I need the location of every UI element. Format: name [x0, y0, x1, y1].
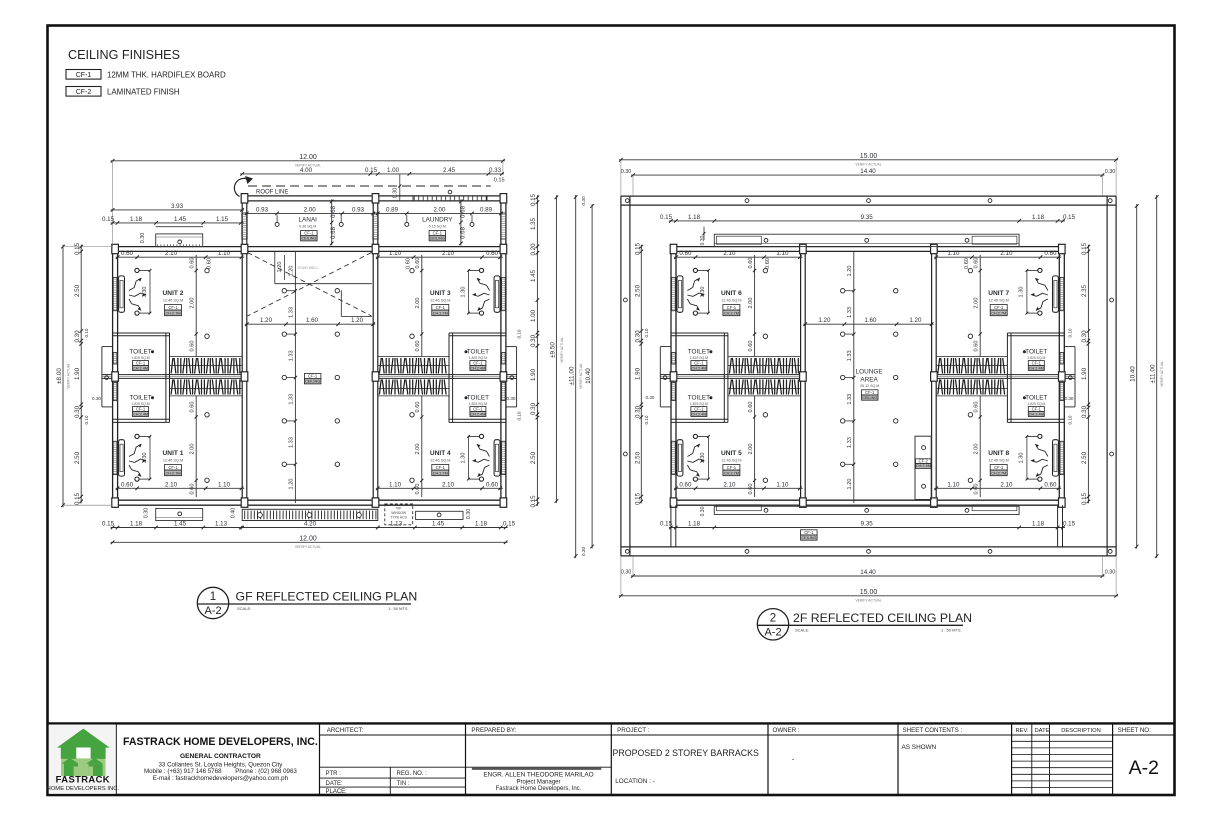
svg-text:VERIFY ACTUAL: VERIFY ACTUAL [560, 337, 564, 363]
svg-text:2.10: 2.10 [165, 250, 178, 257]
svg-text:0.89: 0.89 [480, 206, 493, 213]
svg-text:CH:2.7M: CH:2.7M [724, 312, 739, 316]
svg-text:0.60: 0.60 [748, 484, 754, 495]
svg-text:GF REFLECTED CEILING PLAN: GF REFLECTED CEILING PLAN [236, 590, 418, 604]
svg-text:1.33: 1.33 [847, 437, 853, 448]
svg-text:1.20: 1.20 [847, 266, 853, 277]
svg-text:0.60: 0.60 [190, 402, 196, 413]
svg-text:0.30: 0.30 [92, 396, 101, 401]
svg-text:CH:2.4M: CH:2.4M [1029, 412, 1044, 416]
svg-text:±11.00: ±11.00 [569, 366, 576, 385]
svg-text:26.12 SQ.M: 26.12 SQ.M [860, 384, 879, 388]
svg-text:1.18: 1.18 [130, 216, 143, 223]
svg-text:0.15: 0.15 [102, 520, 115, 527]
svg-text:CH:2.7M: CH:2.7M [433, 312, 448, 316]
svg-text:PROPOSED 2 STOREY BARRACKS: PROPOSED 2 STOREY BARRACKS [613, 748, 759, 758]
svg-text:TYPE ACU: TYPE ACU [390, 516, 407, 520]
svg-text:0.30: 0.30 [74, 405, 81, 418]
svg-text:1.10: 1.10 [776, 250, 789, 257]
svg-text:0.10: 0.10 [1068, 415, 1073, 424]
svg-text:12.46 SQ.M: 12.46 SQ.M [989, 299, 1009, 303]
svg-text:1.33: 1.33 [847, 307, 853, 318]
svg-text:0.30: 0.30 [1105, 570, 1116, 576]
svg-text:0.30: 0.30 [700, 506, 706, 516]
svg-text:0.60: 0.60 [748, 258, 754, 269]
svg-text:0.10: 0.10 [1068, 328, 1073, 337]
svg-text:0.15: 0.15 [74, 242, 81, 255]
svg-text:0.60: 0.60 [190, 484, 196, 495]
svg-text:1.30: 1.30 [142, 287, 148, 298]
svg-text:CEILING: CEILING [430, 237, 445, 241]
svg-text:0.30: 0.30 [634, 330, 641, 343]
svg-text:1.60: 1.60 [306, 317, 319, 324]
svg-text:TOILET: TOILET [1025, 395, 1047, 402]
svg-text:0.60: 0.60 [974, 484, 980, 495]
svg-text:CF-1: CF-1 [473, 360, 483, 365]
svg-text:2.00: 2.00 [974, 298, 980, 309]
svg-text:12.46 SQ.M: 12.46 SQ.M [163, 459, 183, 463]
svg-text:0.30: 0.30 [393, 188, 399, 199]
svg-text:4.20: 4.20 [304, 520, 317, 527]
svg-text:0.30: 0.30 [144, 508, 150, 519]
svg-text:Fastrack Home Developers, Inc.: Fastrack Home Developers, Inc. [496, 786, 582, 792]
svg-text:0.60: 0.60 [974, 341, 980, 352]
svg-text:9.35: 9.35 [861, 520, 874, 527]
svg-text:VERIFY ACTUAL: VERIFY ACTUAL [67, 363, 71, 389]
svg-text:1.10: 1.10 [389, 481, 402, 488]
svg-text:0.60: 0.60 [1044, 481, 1057, 488]
svg-text:REV.: REV. [1016, 728, 1029, 734]
svg-text:0.60: 0.60 [748, 402, 754, 413]
svg-text:0.30: 0.30 [1081, 330, 1088, 343]
svg-text:TOILET: TOILET [129, 349, 151, 356]
svg-text:0.60: 0.60 [974, 258, 980, 269]
svg-text:0.20: 0.20 [530, 243, 537, 256]
svg-text:1.33: 1.33 [289, 350, 295, 361]
svg-text:±11.00: ±11.00 [1150, 364, 1157, 383]
svg-text:10.40: 10.40 [1130, 366, 1137, 382]
svg-text:0.15: 0.15 [1081, 242, 1088, 255]
svg-text:0.15: 0.15 [634, 492, 641, 505]
svg-text:0.30: 0.30 [1081, 405, 1088, 418]
svg-text:12.00: 12.00 [299, 535, 317, 542]
svg-text:0.15: 0.15 [634, 242, 641, 255]
svg-text:REG. NO. :: REG. NO. : [397, 771, 428, 777]
svg-text:0.30: 0.30 [646, 395, 655, 400]
svg-text:CF-1: CF-1 [76, 72, 92, 79]
svg-text:15.00: 15.00 [860, 589, 878, 596]
svg-text:TIN :: TIN : [397, 781, 410, 787]
svg-text:9.35: 9.35 [861, 214, 874, 221]
svg-text:12.00: 12.00 [299, 154, 317, 161]
svg-text:1.30: 1.30 [700, 453, 706, 464]
svg-text:CF-1: CF-1 [694, 406, 704, 411]
svg-text:1.20: 1.20 [351, 317, 364, 324]
svg-text:1.33: 1.33 [289, 437, 295, 448]
svg-text:0.30: 0.30 [621, 169, 632, 175]
svg-text:2.00: 2.00 [974, 444, 980, 455]
svg-text:CF-1: CF-1 [304, 231, 314, 236]
svg-text:2.35: 2.35 [1081, 284, 1088, 297]
svg-text:0.30: 0.30 [530, 402, 537, 415]
svg-text:0.60: 0.60 [415, 402, 421, 413]
svg-text:E-mail : fastrackhomedeveloper: E-mail : fastrackhomedevelopers@yahoo.co… [153, 775, 289, 782]
svg-text:0.30: 0.30 [530, 334, 537, 347]
svg-text:0.60: 0.60 [406, 258, 412, 269]
svg-text:0.30: 0.30 [621, 570, 632, 576]
svg-text:0.15: 0.15 [530, 193, 537, 206]
svg-text:Project Manager: Project Manager [516, 780, 560, 786]
svg-text:0.60: 0.60 [415, 258, 421, 269]
svg-text:1.20: 1.20 [260, 317, 273, 324]
svg-text:A-2: A-2 [764, 626, 781, 638]
svg-text:0.40: 0.40 [231, 508, 237, 519]
svg-text:1.10: 1.10 [947, 250, 960, 257]
svg-text:SCALE:: SCALE: [795, 627, 809, 632]
svg-text:1 : 50 MTS.: 1 : 50 MTS. [941, 627, 962, 632]
svg-text:LOUNGE: LOUNGE [856, 369, 883, 376]
svg-text:DATE:: DATE: [326, 781, 344, 787]
svg-text:1.30: 1.30 [1019, 287, 1025, 298]
svg-text:1.20: 1.20 [818, 317, 831, 324]
svg-text:1.20: 1.20 [847, 479, 853, 490]
svg-text:0.60: 0.60 [121, 481, 134, 488]
svg-text:1.15: 1.15 [216, 216, 229, 223]
svg-text:UNIT 1: UNIT 1 [163, 450, 184, 457]
svg-text:CH:2.7M: CH:2.7M [991, 312, 1006, 316]
svg-text:10.40: 10.40 [585, 368, 592, 384]
svg-text:1.30: 1.30 [460, 453, 466, 464]
svg-text:12.46 SQ.M: 12.46 SQ.M [430, 299, 450, 303]
svg-text:2.00: 2.00 [190, 444, 196, 455]
svg-text:2.00: 2.00 [433, 206, 446, 213]
svg-text:0.60: 0.60 [486, 481, 499, 488]
svg-text:CEILING: CEILING [862, 396, 877, 400]
svg-text:0.15: 0.15 [1063, 214, 1076, 221]
svg-text:2.00: 2.00 [748, 298, 754, 309]
svg-text:WINDOW: WINDOW [391, 511, 407, 515]
svg-text:0.15: 0.15 [530, 495, 537, 508]
svg-text:2F REFLECTED CEILING PLAN: 2F REFLECTED CEILING PLAN [793, 611, 972, 625]
svg-text:2.50: 2.50 [1081, 451, 1088, 464]
svg-text:1.00: 1.00 [387, 167, 400, 174]
svg-text:0.30: 0.30 [1105, 169, 1116, 175]
svg-text:2.10: 2.10 [165, 481, 178, 488]
svg-text:1.20: 1.20 [289, 479, 295, 490]
svg-text:DATE: DATE [1035, 728, 1050, 734]
svg-text:0.10: 0.10 [517, 329, 522, 338]
svg-text:FASTRACK: FASTRACK [56, 774, 110, 785]
svg-text:CF-1: CF-1 [694, 360, 704, 365]
svg-text:0.15: 0.15 [365, 167, 378, 174]
svg-text:CEILING: CEILING [301, 237, 316, 241]
svg-text:0.30: 0.30 [74, 330, 81, 343]
svg-text:2.00: 2.00 [748, 444, 754, 455]
svg-text:PLACE:: PLACE: [326, 789, 348, 795]
svg-text:1.10: 1.10 [389, 250, 402, 257]
svg-text:0.15: 0.15 [660, 520, 673, 527]
svg-text:PROJECT :: PROJECT : [617, 727, 649, 734]
svg-text:OWNER :: OWNER : [773, 727, 800, 734]
svg-text:A-2: A-2 [1129, 757, 1159, 779]
svg-text:0.60: 0.60 [748, 341, 754, 352]
svg-text:2.00: 2.00 [190, 298, 196, 309]
svg-text:0.15: 0.15 [503, 520, 516, 527]
svg-text:1.10: 1.10 [947, 481, 960, 488]
svg-text:CF-1: CF-1 [994, 465, 1004, 470]
svg-text:1.45: 1.45 [432, 520, 445, 527]
svg-text:0.10: 0.10 [644, 328, 649, 337]
svg-text:2.45: 2.45 [443, 167, 456, 174]
svg-text:AS SHOWN: AS SHOWN [902, 744, 937, 751]
svg-text:CF-1: CF-1 [1032, 360, 1042, 365]
svg-text:DESCRIPTION: DESCRIPTION [1061, 728, 1101, 734]
svg-text:CF-1: CF-1 [994, 305, 1004, 310]
svg-text:0.10: 0.10 [517, 411, 522, 420]
svg-text:1.45: 1.45 [530, 269, 537, 282]
svg-text:0.60: 0.60 [415, 484, 421, 495]
svg-text:CF-2: CF-2 [919, 458, 929, 463]
svg-text:UNIT 8: UNIT 8 [988, 450, 1009, 457]
svg-text:0.60: 0.60 [964, 258, 970, 269]
svg-text:UNIT 5: UNIT 5 [721, 450, 742, 457]
svg-text:VERIFY ACTUAL: VERIFY ACTUAL [855, 163, 881, 167]
svg-text:1.33: 1.33 [847, 350, 853, 361]
svg-text:CF-1: CF-1 [473, 406, 483, 411]
svg-text:0.60: 0.60 [765, 258, 771, 269]
svg-text:ENGR. ALLEN THEODORE MARILAO: ENGR. ALLEN THEODORE MARILAO [483, 772, 593, 779]
svg-text:12.46 SQ.M: 12.46 SQ.M [163, 299, 183, 303]
svg-text:5.15 SQ.M: 5.15 SQ.M [429, 225, 446, 229]
svg-text:15.00: 15.00 [860, 153, 878, 160]
svg-text:TOILET: TOILET [129, 395, 151, 402]
svg-text:CF-1: CF-1 [804, 530, 814, 535]
svg-text:0.60: 0.60 [415, 341, 421, 352]
svg-text:2.10: 2.10 [723, 481, 736, 488]
svg-text:0.15: 0.15 [74, 492, 81, 505]
svg-text:0.93: 0.93 [352, 206, 365, 213]
svg-text:±8.00: ±8.00 [56, 368, 63, 384]
svg-text:VIP: VIP [396, 507, 402, 511]
svg-text:CH:2.4M: CH:2.4M [691, 412, 706, 416]
svg-text:0.93: 0.93 [256, 206, 269, 213]
svg-text:UNIT 4: UNIT 4 [430, 450, 451, 457]
svg-text:0.60: 0.60 [190, 341, 196, 352]
svg-text:SHEET NO:: SHEET NO: [1118, 727, 1152, 734]
svg-text:CEILING FINISHES: CEILING FINISHES [68, 48, 180, 62]
svg-text:1.20: 1.20 [909, 317, 922, 324]
svg-text:6.36 SQ.M: 6.36 SQ.M [299, 225, 316, 229]
svg-text:1.20: 1.20 [289, 266, 295, 277]
svg-text:1.90: 1.90 [634, 367, 641, 380]
svg-text:CF-2: CF-2 [76, 89, 92, 96]
svg-text:LAMINATED FINISH: LAMINATED FINISH [107, 87, 180, 96]
svg-text:1.13: 1.13 [390, 520, 403, 527]
svg-text:A-2: A-2 [204, 605, 221, 617]
svg-text:CF-1: CF-1 [865, 390, 875, 395]
svg-text:1.90: 1.90 [530, 368, 537, 381]
svg-text:PTR :: PTR : [326, 771, 342, 777]
svg-text:0.30: 0.30 [507, 396, 516, 401]
svg-text:0.30: 0.30 [466, 509, 472, 520]
svg-text:CH:2.7M: CH:2.7M [166, 472, 181, 476]
svg-text:CF-1: CF-1 [308, 374, 318, 379]
svg-text:2.10: 2.10 [723, 250, 736, 257]
svg-text:CH:2.7M: CH:2.7M [724, 472, 739, 476]
svg-text:12MM THK. HARDIFLEX BOARD: 12MM THK. HARDIFLEX BOARD [107, 70, 226, 79]
svg-text:Mobile : (+63) 917 146 5768: Mobile : (+63) 917 146 5768 Phone : (02)… [144, 768, 297, 775]
svg-text:±9.50: ±9.50 [549, 342, 556, 358]
svg-text:1.10: 1.10 [776, 481, 789, 488]
svg-text:1.18: 1.18 [688, 520, 701, 527]
svg-text:TOILET: TOILET [467, 349, 489, 356]
svg-text:CF-1: CF-1 [136, 360, 146, 365]
svg-text:LOCATION : -: LOCATION : - [615, 778, 655, 785]
svg-text:CEILING: CEILING [305, 380, 320, 384]
svg-text:0.60: 0.60 [207, 258, 213, 269]
svg-text:LANAI: LANAI [298, 217, 317, 224]
svg-text:TOILET: TOILET [688, 395, 710, 402]
svg-text:12.46 SQ.M: 12.46 SQ.M [989, 459, 1009, 463]
svg-text:1.35: 1.35 [530, 217, 537, 230]
svg-text:UNIT 6: UNIT 6 [721, 290, 742, 297]
svg-text:1.90: 1.90 [74, 367, 81, 380]
svg-text:12.46 SQ.M: 12.46 SQ.M [721, 299, 741, 303]
svg-text:0.30: 0.30 [581, 547, 587, 557]
svg-text:1.30: 1.30 [142, 453, 148, 464]
svg-text:14.40: 14.40 [860, 569, 876, 576]
svg-text:0.68: 0.68 [459, 226, 466, 239]
svg-text:0.60: 0.60 [679, 481, 692, 488]
svg-text:CF-1: CF-1 [168, 465, 178, 470]
svg-text:CH:2.7M: CH:2.7M [991, 472, 1006, 476]
svg-text:CF-1: CF-1 [136, 406, 146, 411]
svg-text:CH:2.4M: CH:2.4M [1029, 366, 1044, 370]
svg-text:2.50: 2.50 [634, 451, 641, 464]
svg-text:FASTRACK HOME DEVELOPERS, INC.: FASTRACK HOME DEVELOPERS, INC. [123, 736, 318, 748]
svg-text:0.30: 0.30 [581, 196, 587, 206]
svg-text:CF-1: CF-1 [433, 231, 443, 236]
svg-text:TOILET: TOILET [467, 395, 489, 402]
svg-text:0.30: 0.30 [140, 233, 146, 244]
svg-text:CF-1: CF-1 [436, 465, 446, 470]
svg-text:1.13: 1.13 [215, 520, 228, 527]
svg-text:VERIFY ACTUAL: VERIFY ACTUAL [295, 545, 321, 549]
svg-text:0.15: 0.15 [660, 214, 673, 221]
svg-text:CF-1: CF-1 [727, 305, 737, 310]
svg-text:GENERAL CONTRACTOR: GENERAL CONTRACTOR [180, 753, 261, 760]
svg-text:1.45: 1.45 [174, 520, 187, 527]
svg-text:1 : 50 MTS.: 1 : 50 MTS. [388, 606, 409, 611]
svg-text:2.00: 2.00 [304, 206, 317, 213]
svg-text:2.50: 2.50 [74, 451, 81, 464]
svg-text:1.18: 1.18 [1032, 214, 1045, 221]
svg-text:ROOF LINE: ROOF LINE [256, 189, 288, 195]
svg-text:0.10: 0.10 [84, 415, 89, 424]
svg-text:CF-1: CF-1 [436, 305, 446, 310]
svg-text:0.68: 0.68 [459, 205, 466, 218]
svg-text:0.68: 0.68 [330, 226, 337, 239]
svg-text:2.50: 2.50 [530, 451, 537, 464]
svg-text:0.15: 0.15 [1063, 520, 1076, 527]
svg-text:1.18: 1.18 [475, 520, 488, 527]
svg-text:1.10: 1.10 [218, 250, 231, 257]
svg-text:1.33: 1.33 [289, 394, 295, 405]
svg-text:UNIT 2: UNIT 2 [163, 290, 184, 297]
svg-text:4.00: 4.00 [300, 167, 313, 174]
svg-text:0.15: 0.15 [1081, 492, 1088, 505]
svg-text:2.00: 2.00 [415, 298, 421, 309]
svg-text:2.50: 2.50 [74, 284, 81, 297]
svg-text:PREPARED BY:: PREPARED BY: [471, 727, 516, 734]
svg-text:1.90: 1.90 [1081, 367, 1088, 380]
svg-text:0.60: 0.60 [1044, 250, 1057, 257]
svg-text:1.00: 1.00 [530, 309, 537, 322]
svg-text:1.20: 1.20 [277, 262, 283, 273]
svg-text:2.10: 2.10 [442, 250, 455, 257]
svg-text:12.46 SQ.M: 12.46 SQ.M [430, 459, 450, 463]
svg-text:1.30: 1.30 [700, 287, 706, 298]
svg-text:0.60: 0.60 [486, 250, 499, 257]
svg-text:1.18: 1.18 [1032, 520, 1045, 527]
svg-text:2: 2 [770, 612, 776, 624]
svg-text:2.10: 2.10 [1000, 481, 1013, 488]
svg-text:1.30: 1.30 [1019, 453, 1025, 464]
svg-text:VERIFY ACTUAL: VERIFY ACTUAL [579, 363, 583, 389]
svg-text:0.33: 0.33 [489, 167, 502, 174]
svg-text:1.45: 1.45 [174, 216, 187, 223]
svg-text:0.30: 0.30 [700, 235, 706, 245]
svg-text:0.60: 0.60 [679, 250, 692, 257]
svg-text:14.40: 14.40 [860, 168, 876, 175]
svg-text:CH:2.4M: CH:2.4M [470, 366, 485, 370]
svg-text:1: 1 [210, 591, 216, 603]
svg-text:CF-1: CF-1 [727, 465, 737, 470]
svg-text:TOILET: TOILET [688, 349, 710, 356]
svg-text:1.30: 1.30 [460, 287, 466, 298]
svg-text:0.30: 0.30 [1065, 396, 1074, 401]
svg-text:CH:2.4M: CH:2.4M [133, 366, 148, 370]
svg-text:2.50: 2.50 [634, 284, 641, 297]
svg-text:2.10: 2.10 [1000, 250, 1013, 257]
svg-text:VERIFY ACTUAL: VERIFY ACTUAL [1160, 361, 1164, 387]
svg-text:2.00: 2.00 [415, 444, 421, 455]
svg-text:2.10: 2.10 [442, 481, 455, 488]
svg-text:0.15: 0.15 [102, 216, 115, 223]
svg-text:TOILET: TOILET [1025, 349, 1047, 356]
svg-text:0.68: 0.68 [330, 205, 337, 218]
svg-text:0.60: 0.60 [190, 258, 196, 269]
svg-text:CH:2.4M: CH:2.4M [691, 366, 706, 370]
svg-text:CH:2.4M: CH:2.4M [133, 412, 148, 416]
svg-text:AREA: AREA [860, 376, 878, 383]
svg-text:CH:2.4M: CH:2.4M [470, 412, 485, 416]
svg-text:CF-1: CF-1 [168, 305, 178, 310]
svg-text:HOME DEVELOPERS INC.: HOME DEVELOPERS INC. [46, 786, 119, 792]
svg-text:0.60: 0.60 [121, 250, 134, 257]
svg-text:CF-1: CF-1 [1032, 406, 1042, 411]
svg-text:12.46 SQ.M: 12.46 SQ.M [721, 459, 741, 463]
svg-text:1.18: 1.18 [688, 214, 701, 221]
svg-text:0.30: 0.30 [634, 405, 641, 418]
svg-text:CH:2.4M: CH:2.4M [916, 464, 931, 468]
svg-text:SHEET CONTENTS :: SHEET CONTENTS : [903, 727, 963, 734]
svg-text:3.93: 3.93 [171, 203, 184, 210]
svg-text:CEILING: CEILING [801, 536, 816, 540]
svg-text:STAIR WELL: STAIR WELL [297, 266, 318, 270]
svg-text:0.15: 0.15 [494, 178, 505, 184]
svg-text:VERIFY ACTUAL: VERIFY ACTUAL [855, 599, 881, 603]
